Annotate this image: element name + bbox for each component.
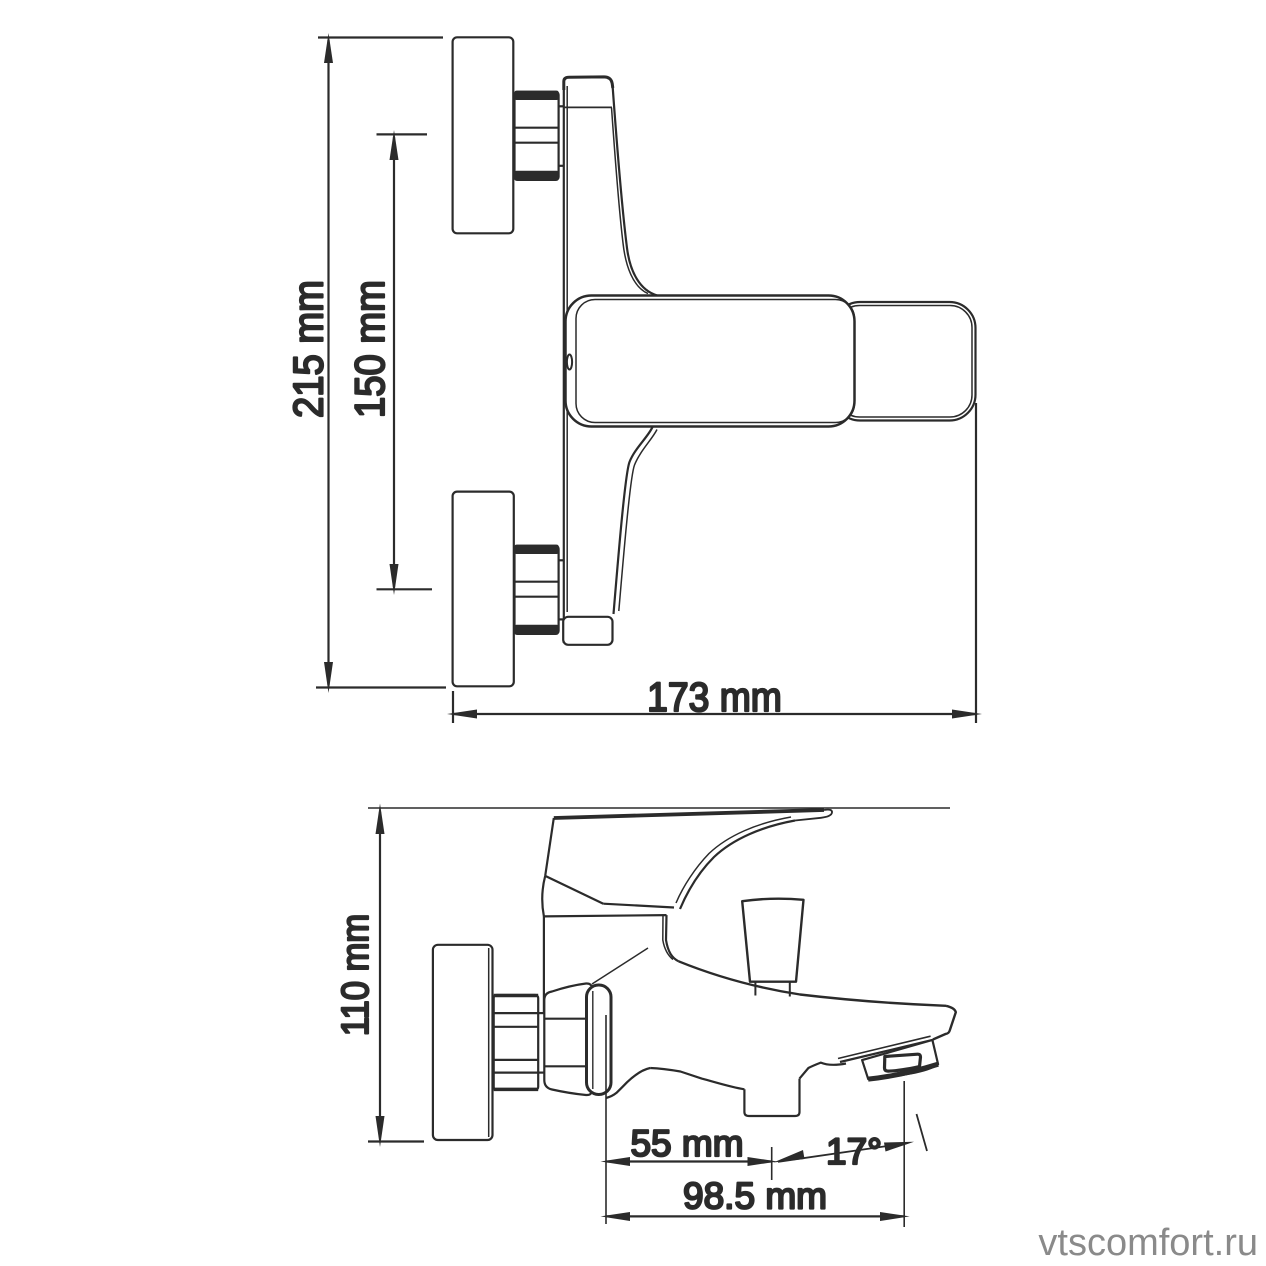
- svg-text:vtscomfort.ru: vtscomfort.ru: [1038, 1222, 1258, 1264]
- svg-text:17°: 17°: [826, 1131, 882, 1172]
- svg-text:173 mm: 173 mm: [647, 675, 782, 720]
- svg-text:150 mm: 150 mm: [346, 280, 393, 418]
- svg-text:55 mm: 55 mm: [630, 1123, 743, 1164]
- svg-text:98.5 mm: 98.5 mm: [683, 1176, 827, 1217]
- svg-text:110 mm: 110 mm: [333, 914, 376, 1036]
- svg-text:215 mm: 215 mm: [285, 280, 332, 418]
